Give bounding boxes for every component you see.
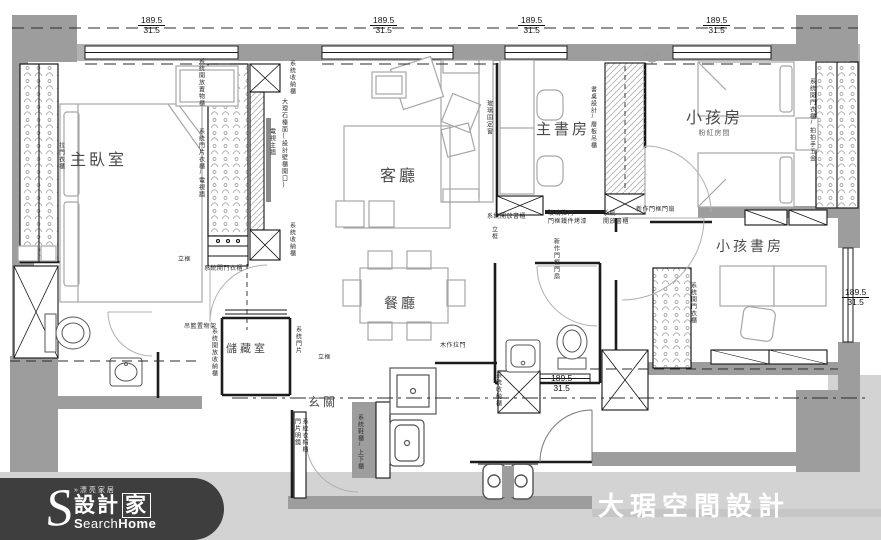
sofa	[441, 60, 493, 202]
searchhome-logo: S »漂亮家居 設計家 SearchHome	[0, 478, 224, 540]
storage-rod	[225, 310, 287, 314]
ottomans	[336, 201, 394, 227]
open-bookcase-left	[497, 196, 543, 215]
logo-name-left: 設計	[74, 494, 120, 517]
company-watermark: 大琚空間設計	[598, 486, 790, 523]
dining-table-set	[343, 251, 465, 340]
furniture	[18, 48, 826, 499]
kids-study-desks	[720, 266, 826, 342]
window-top-3	[505, 46, 567, 59]
master-dresser	[176, 66, 238, 106]
laundry-fixtures	[18, 246, 56, 261]
logo-latin-light: earch	[83, 516, 118, 531]
kids-wardrobe	[816, 62, 858, 208]
logo-name: 設計家	[74, 495, 156, 517]
sink-guest-bath	[506, 340, 540, 372]
side-table	[372, 72, 406, 98]
logo-s-icon: S	[43, 482, 74, 536]
kitchen-counter	[390, 368, 436, 414]
study-desk	[500, 60, 563, 194]
kids-beds	[698, 62, 818, 207]
floor-plan-drawing	[0, 0, 881, 540]
window-top-1	[85, 46, 238, 59]
entry-door-unit	[478, 464, 538, 499]
window-top-4	[673, 46, 771, 59]
toilet-master	[45, 314, 90, 352]
logo-latin: SearchHome	[74, 517, 156, 531]
tv-wall	[250, 64, 280, 260]
logo-latin-bold: Home	[118, 516, 156, 531]
toilet-guest	[557, 325, 587, 369]
window-right	[843, 248, 853, 342]
logo-latin-s: S	[74, 516, 83, 531]
main-entry-door	[540, 410, 592, 462]
logo-text-stack: »漂亮家居 設計家 SearchHome	[74, 487, 156, 530]
guest-bath-door	[537, 266, 597, 326]
window-top-2	[322, 46, 453, 59]
master-bath-door	[108, 312, 152, 356]
sink-master-bath	[110, 358, 142, 386]
master-bed	[60, 104, 202, 302]
master-wardrobe-left	[20, 64, 58, 262]
floor-plan-canvas: 主臥室客廳主書房小孩房粉紅房間小孩書房餐廳儲藏室玄關拉門衣櫃系統開放置物櫃系統門…	[0, 0, 881, 540]
kitchen-sink	[390, 420, 424, 466]
logo-name-boxed: 家	[122, 493, 151, 518]
